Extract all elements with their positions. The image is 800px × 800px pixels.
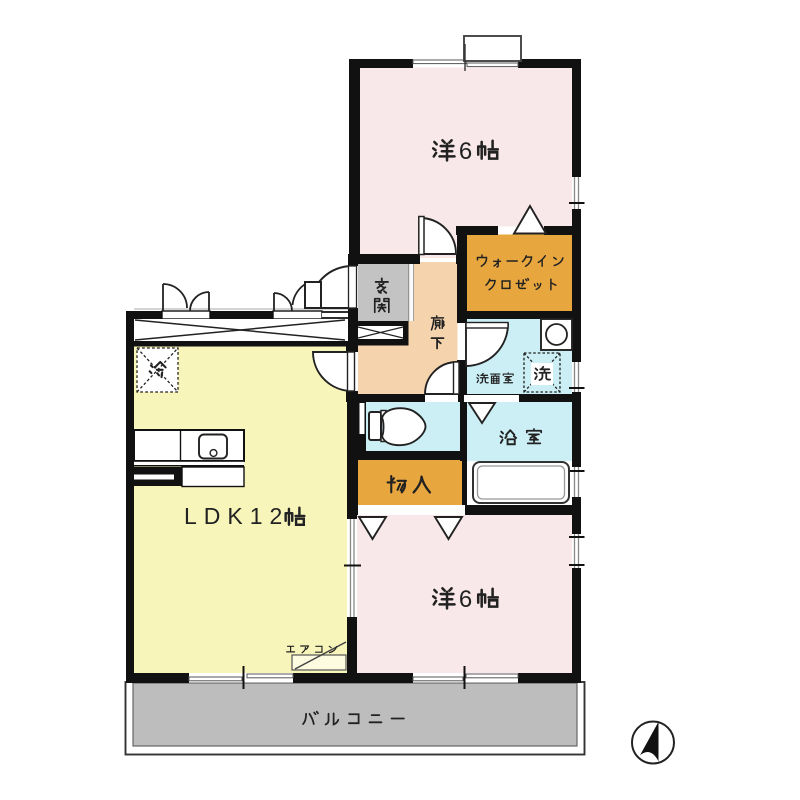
svg-text:6: 6 bbox=[459, 138, 472, 165]
svg-text:LDK12: LDK12 bbox=[184, 503, 289, 529]
svg-text:6: 6 bbox=[459, 586, 472, 613]
